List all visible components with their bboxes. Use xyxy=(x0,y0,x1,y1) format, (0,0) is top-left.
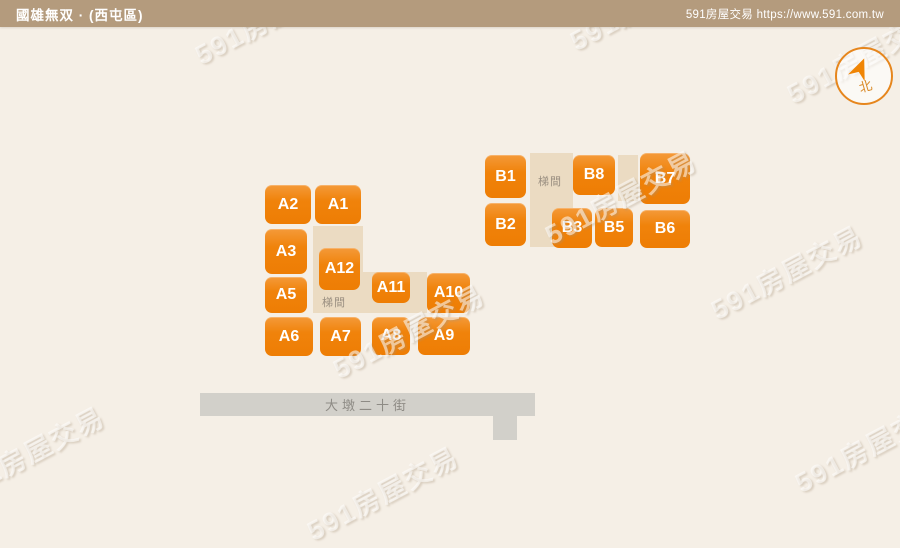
stairwell-label: 梯間 xyxy=(538,173,562,189)
site-credit: 591房屋交易 https://www.591.com.tw xyxy=(686,6,884,22)
unit-a9[interactable]: A9 xyxy=(418,317,470,355)
watermark-text: 591房屋交易 xyxy=(787,388,900,501)
unit-a5[interactable]: A5 xyxy=(265,277,307,313)
stairwell-area xyxy=(618,155,638,201)
unit-b5[interactable]: B5 xyxy=(595,208,633,247)
unit-a8[interactable]: A8 xyxy=(372,317,410,355)
unit-a2[interactable]: A2 xyxy=(265,185,311,224)
watermark-text: 591房屋交易 xyxy=(703,215,869,328)
unit-a12[interactable]: A12 xyxy=(319,248,360,290)
watermark-text: 591房屋交易 xyxy=(299,436,465,548)
compass-north-label: 北 xyxy=(858,78,874,94)
unit-a10[interactable]: A10 xyxy=(427,273,470,313)
stairwell-label: 梯間 xyxy=(322,294,346,310)
header-bar: 國雄無双 · (西屯區) 591房屋交易 https://www.591.com… xyxy=(0,0,900,27)
unit-a7[interactable]: A7 xyxy=(320,317,361,356)
unit-a11[interactable]: A11 xyxy=(372,272,410,303)
unit-b2[interactable]: B2 xyxy=(485,203,526,246)
watermark-text: 591房屋交易 xyxy=(0,396,111,509)
street-stub xyxy=(493,416,517,440)
unit-a3[interactable]: A3 xyxy=(265,229,307,274)
unit-a1[interactable]: A1 xyxy=(315,185,361,224)
page-title: 國雄無双 · (西屯區) xyxy=(16,4,144,24)
unit-b8[interactable]: B8 xyxy=(573,155,615,195)
unit-b3[interactable]: B3 xyxy=(552,208,592,248)
street-name: 大墩二十街 xyxy=(325,395,410,414)
compass: 北 xyxy=(835,47,893,105)
site-plan-page: 國雄無双 · (西屯區) 591房屋交易 https://www.591.com… xyxy=(0,0,900,510)
unit-b7[interactable]: B7 xyxy=(640,153,690,204)
unit-a6[interactable]: A6 xyxy=(265,317,313,356)
unit-b6[interactable]: B6 xyxy=(640,210,690,248)
street-bar: 大墩二十街 xyxy=(200,393,535,416)
unit-b1[interactable]: B1 xyxy=(485,155,526,198)
